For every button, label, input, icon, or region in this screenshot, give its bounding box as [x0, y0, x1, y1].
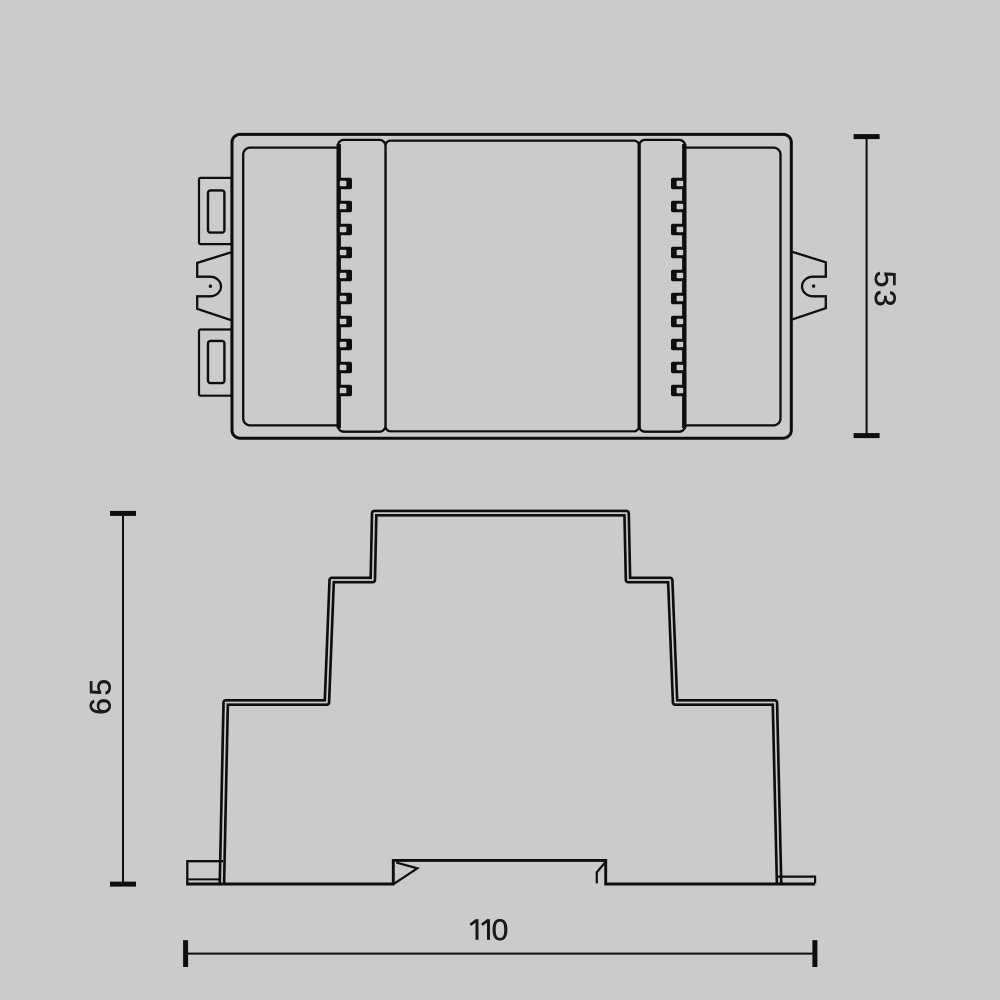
svg-text:0: 0: [492, 914, 509, 947]
svg-text:65: 65: [84, 676, 117, 714]
svg-text:53: 53: [868, 271, 901, 309]
